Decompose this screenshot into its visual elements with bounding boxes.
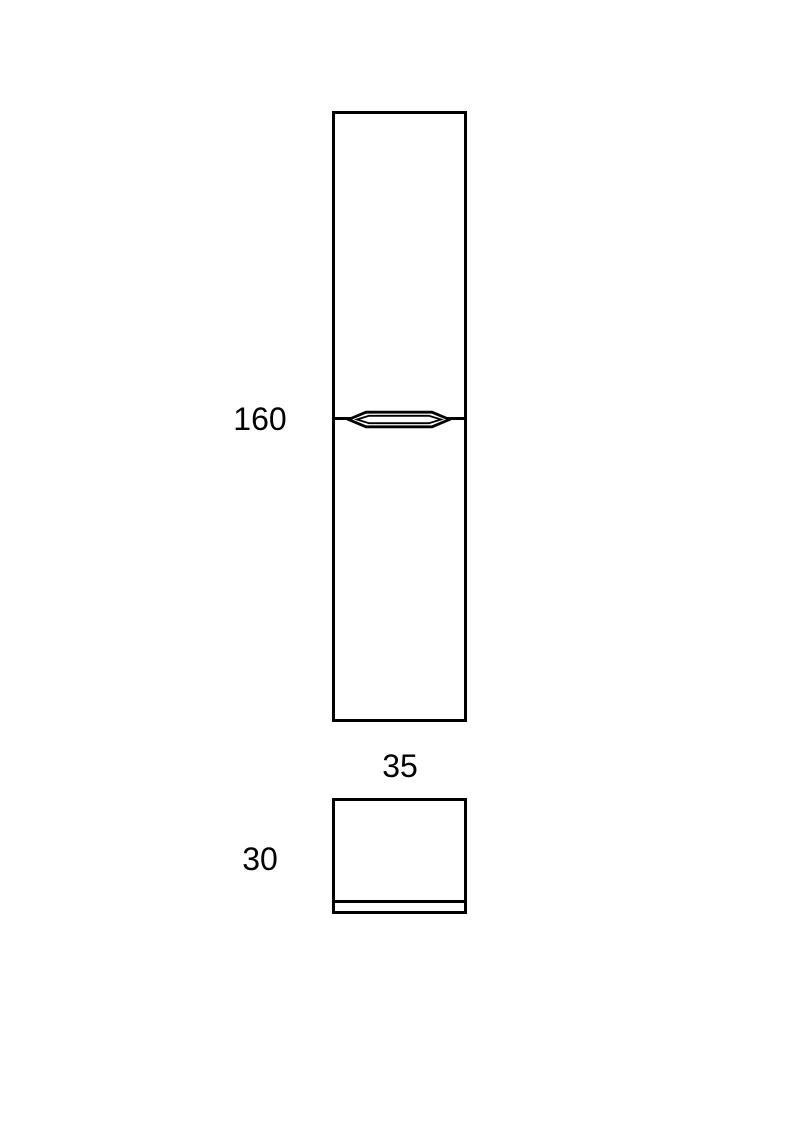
cabinet-handle-icon: [347, 409, 451, 430]
depth-dimension-label: 30: [228, 843, 292, 875]
plinth-line: [335, 900, 464, 903]
width-dimension-label: 35: [368, 750, 432, 782]
cabinet-side-view: [332, 798, 467, 914]
height-dimension-label: 160: [228, 403, 292, 435]
diagram-canvas: 160 35 30: [0, 0, 800, 1132]
cabinet-front-view: [332, 111, 467, 722]
